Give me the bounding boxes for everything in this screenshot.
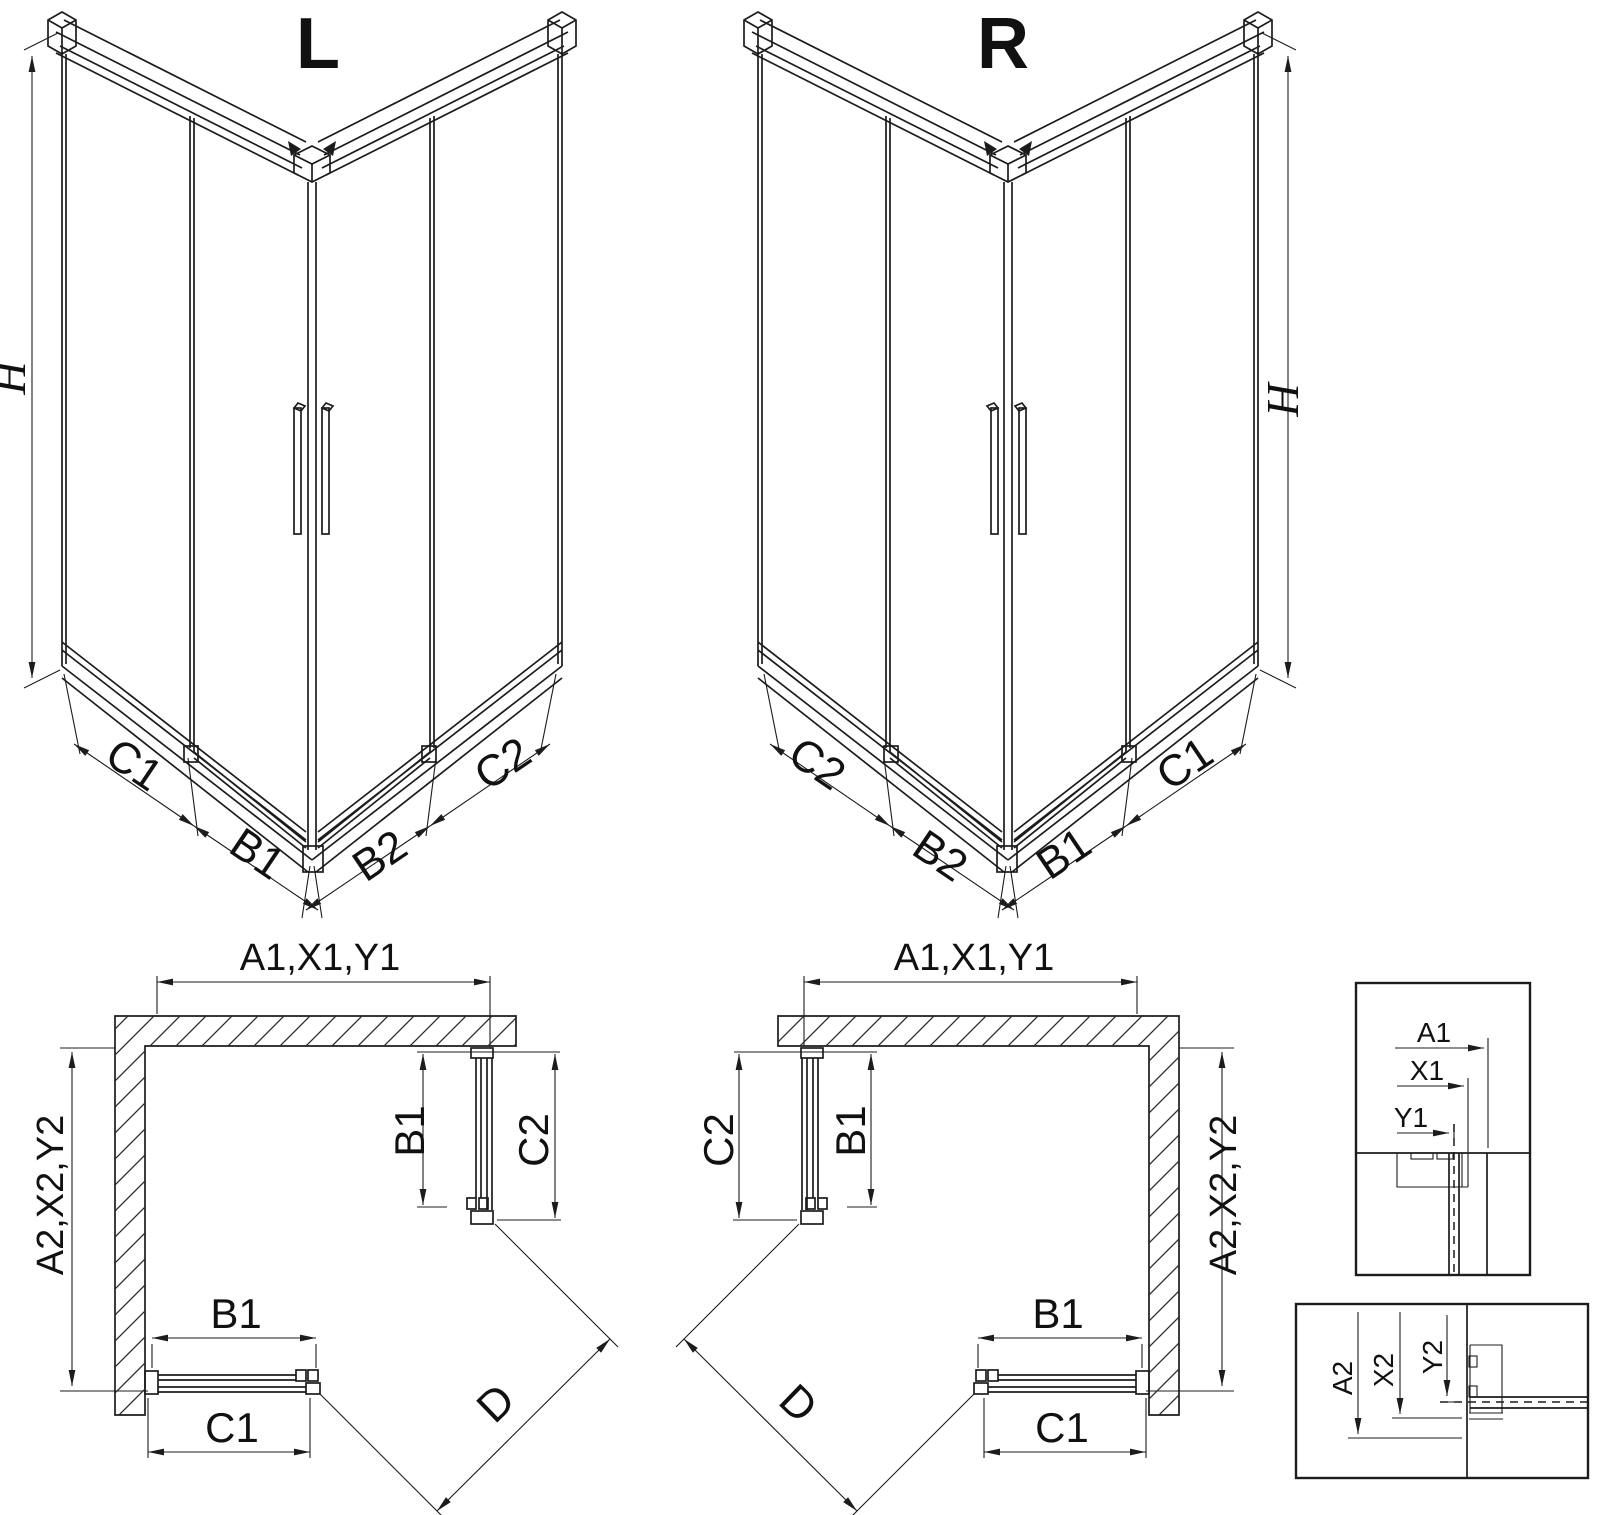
detail-top-dim-a1: A1 <box>1417 1017 1451 1048</box>
plan-right-door-side-dim: B1 <box>827 1105 874 1156</box>
wall-hatching <box>115 1016 1179 1415</box>
plan-right-side-dim: A2,X2,Y2 <box>1203 1115 1245 1276</box>
detail-bottom-dim-a2: A2 <box>1327 1361 1358 1395</box>
iso-left-dim-c1: C1 <box>97 729 171 801</box>
plan-left-diagonal-dim: D <box>467 1375 524 1432</box>
plan-right-fixed-side-dim: C2 <box>695 1113 742 1167</box>
plan-left-side-dim: A2,X2,Y2 <box>30 1115 72 1276</box>
plan-right-top-dim: A1,X1,Y1 <box>894 937 1055 979</box>
detail-bottom-dim-y2: Y2 <box>1417 1340 1448 1374</box>
iso-right-height-label: H <box>1257 381 1308 418</box>
iso-left-dim-b2: B2 <box>344 821 416 892</box>
detail-bottom-dim-x2: X2 <box>1368 1353 1399 1387</box>
technical-drawing-page: L H C1 B1 B2 C2 R H C2 B2 B1 C1 A1,X1,Y1… <box>0 0 1600 1515</box>
plan-left-top-dim: A1,X1,Y1 <box>240 937 401 979</box>
plan-left-door-bottom-dim: B1 <box>210 1290 261 1337</box>
iso-right-dim-c1: C1 <box>1148 728 1222 800</box>
plan-right-door-bottom-dim: B1 <box>1032 1290 1083 1337</box>
plan-right-fixed-bottom-dim: C1 <box>1035 1404 1089 1451</box>
iso-right-dim-b2: B2 <box>904 821 976 892</box>
plan-right-diagonal-dim: D <box>770 1375 827 1432</box>
iso-left-dim-c2: C2 <box>466 728 540 800</box>
shower-enclosure-drawing: L H C1 B1 B2 C2 R H C2 B2 B1 C1 A1,X1,Y1… <box>0 0 1600 1515</box>
iso-left-height-label: H <box>0 359 35 396</box>
plan-left-door-side-dim: B1 <box>386 1105 433 1156</box>
iso-right-dim-c2: C2 <box>780 728 854 800</box>
iso-right-view-label: R <box>977 4 1029 84</box>
iso-left-view-label: L <box>296 4 340 84</box>
plan-left-fixed-side-dim: C2 <box>510 1113 557 1167</box>
detail-top-dim-y1: Y1 <box>1394 1102 1428 1133</box>
plan-left-fixed-bottom-dim: C1 <box>205 1404 259 1451</box>
detail-top-dim-x1: X1 <box>1410 1055 1444 1086</box>
